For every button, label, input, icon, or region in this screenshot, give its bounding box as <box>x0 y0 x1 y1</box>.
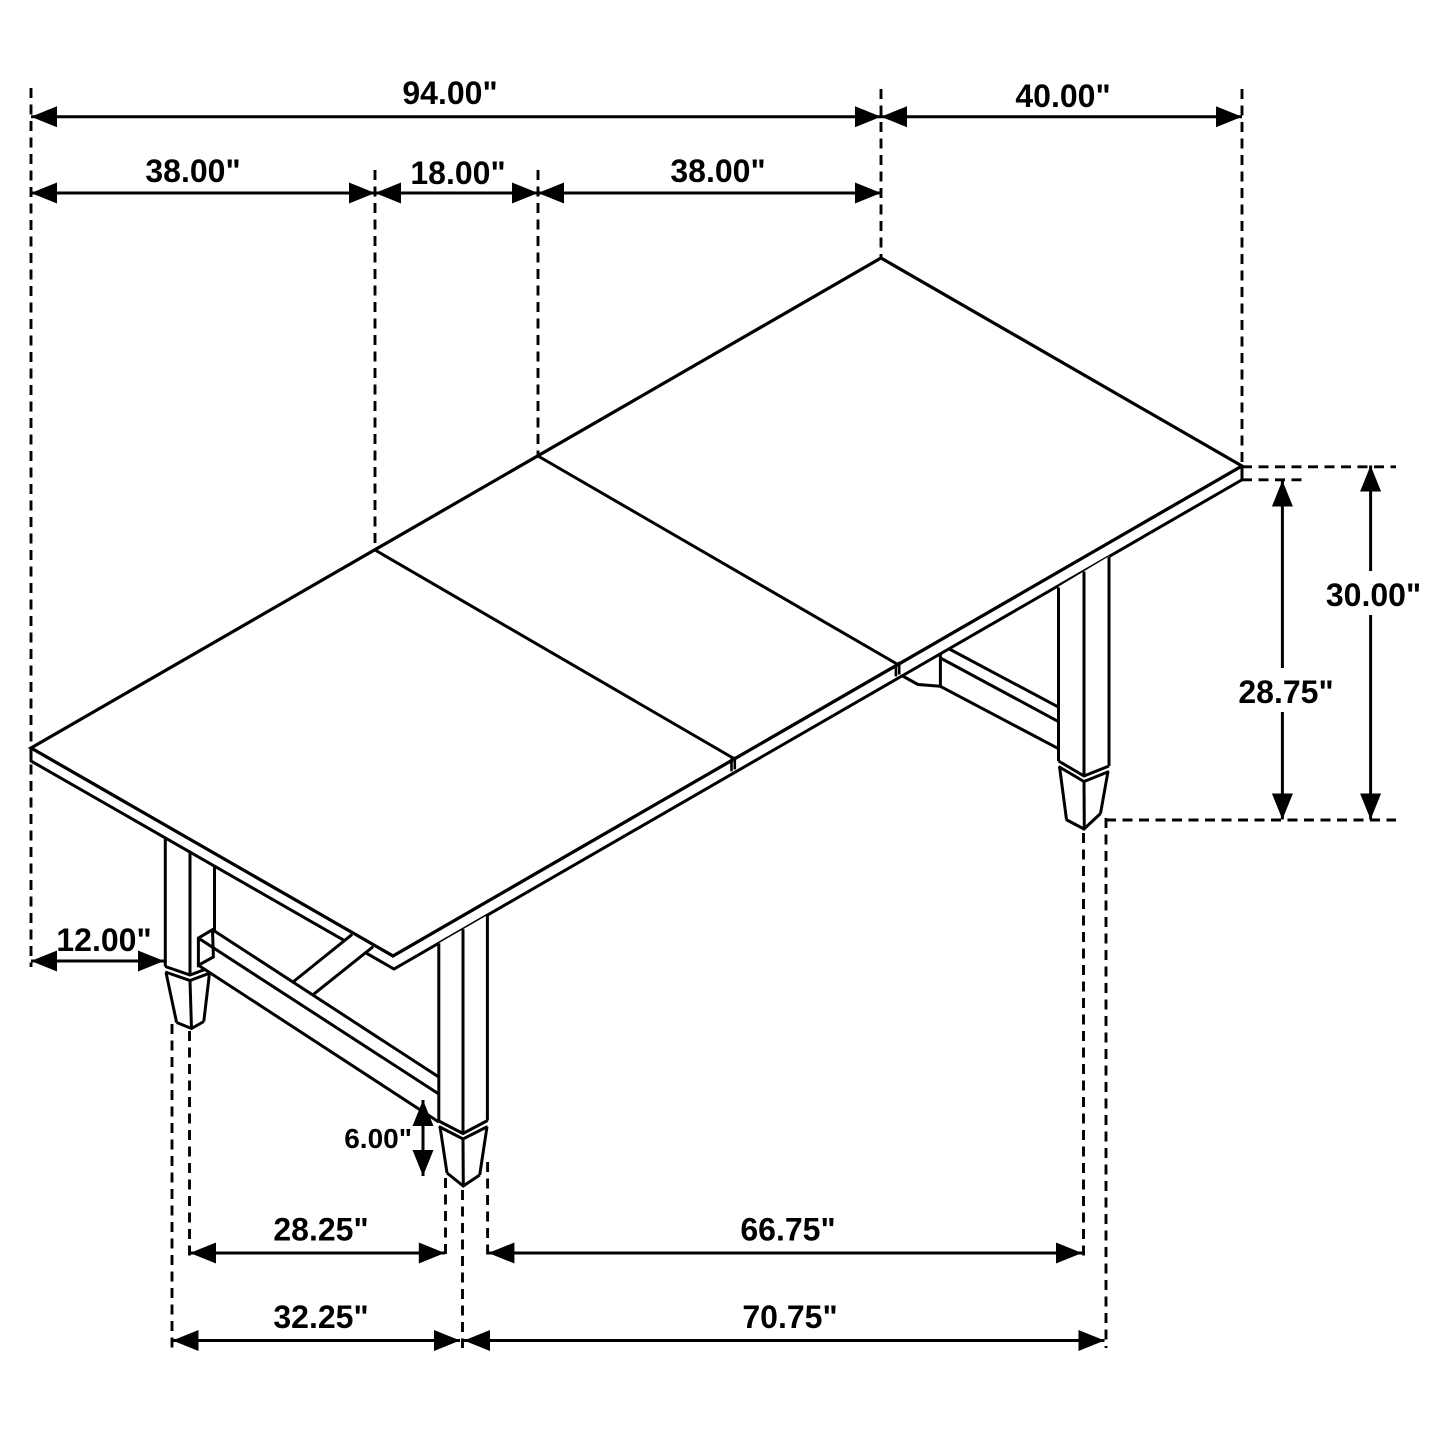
svg-text:6.00": 6.00" <box>344 1123 412 1154</box>
svg-text:28.75": 28.75" <box>1238 674 1333 710</box>
svg-text:38.00": 38.00" <box>670 153 765 189</box>
svg-text:12.00": 12.00" <box>56 922 151 958</box>
svg-text:30.00": 30.00" <box>1326 577 1421 613</box>
svg-text:38.00": 38.00" <box>145 153 240 189</box>
svg-text:28.25": 28.25" <box>273 1212 368 1248</box>
svg-text:18.00": 18.00" <box>410 155 505 191</box>
svg-text:66.75": 66.75" <box>740 1212 835 1248</box>
svg-text:32.25": 32.25" <box>273 1299 368 1335</box>
svg-text:40.00": 40.00" <box>1015 78 1110 114</box>
svg-text:70.75": 70.75" <box>742 1299 837 1335</box>
svg-text:94.00": 94.00" <box>402 75 497 111</box>
